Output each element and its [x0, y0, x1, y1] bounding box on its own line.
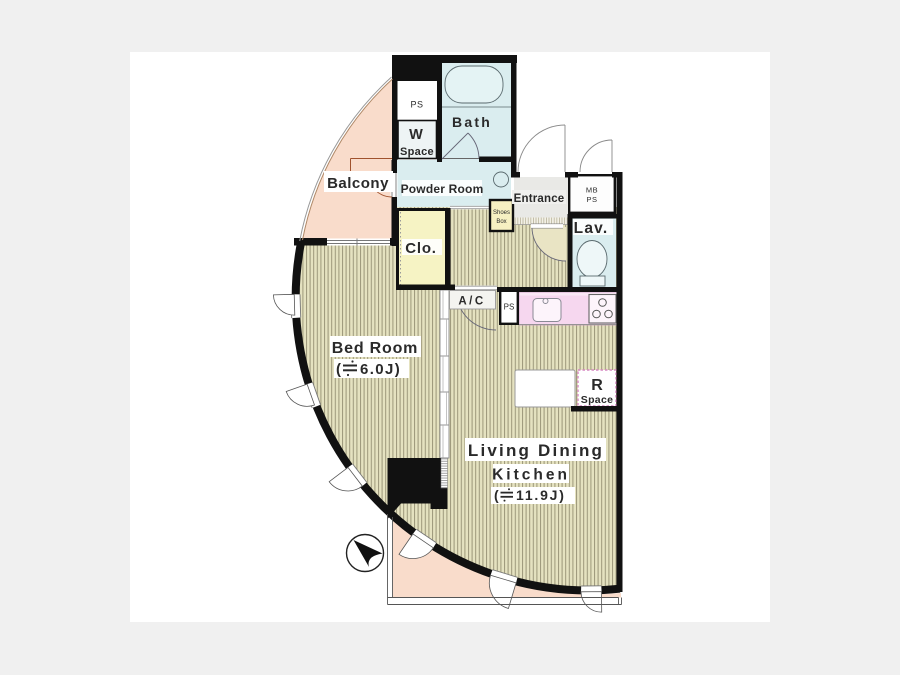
svg-text:R: R	[591, 377, 603, 394]
svg-text:Clo.: Clo.	[405, 240, 437, 257]
svg-text:MB: MB	[586, 186, 598, 195]
svg-text:Space: Space	[581, 394, 613, 406]
svg-text:Living Dining: Living Dining	[468, 441, 604, 460]
svg-text:PS: PS	[410, 100, 423, 110]
svg-text:Bed Room: Bed Room	[332, 340, 418, 357]
svg-text:PS: PS	[586, 195, 597, 204]
svg-text:PS: PS	[504, 303, 515, 312]
svg-text:Box: Box	[496, 219, 506, 225]
svg-text:A/C: A/C	[458, 296, 485, 308]
svg-text:Balcony: Balcony	[327, 175, 389, 192]
svg-text:(: (	[494, 487, 499, 503]
svg-text:Entrance: Entrance	[514, 193, 565, 205]
svg-text:Lav.: Lav.	[574, 220, 609, 237]
svg-text:(: (	[336, 361, 341, 378]
svg-text:6.0J): 6.0J)	[360, 361, 401, 378]
svg-text:11.9J): 11.9J)	[516, 487, 566, 503]
svg-text:Shoes: Shoes	[493, 210, 510, 216]
svg-text:Space: Space	[400, 146, 434, 158]
svg-text:Powder Room: Powder Room	[401, 182, 484, 196]
svg-text:W: W	[409, 127, 423, 143]
svg-text:Bath: Bath	[452, 114, 492, 130]
svg-text:Kitchen: Kitchen	[492, 467, 570, 484]
